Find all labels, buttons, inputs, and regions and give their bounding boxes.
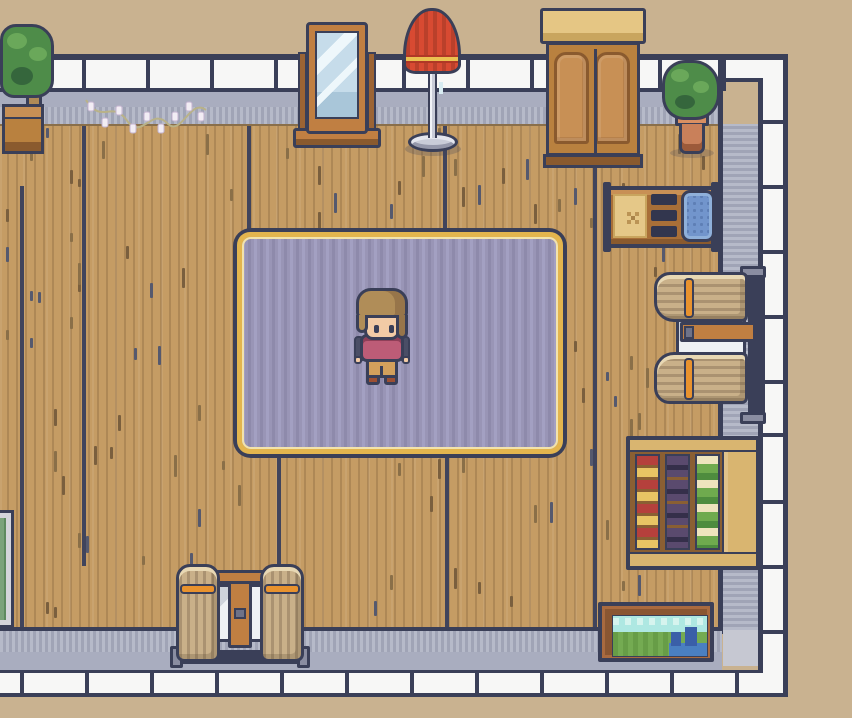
- slat: [651, 194, 677, 205]
- painting-building: [685, 627, 697, 646]
- slat: [651, 226, 677, 237]
- tick: [605, 670, 609, 697]
- mirror-frame: [306, 22, 368, 134]
- tick: [722, 60, 726, 91]
- tick: [146, 60, 150, 91]
- painting-clouds: [613, 618, 707, 625]
- lamp-pole: [428, 68, 437, 138]
- string-lights-graphic: [84, 92, 208, 144]
- tick: [540, 670, 544, 697]
- green-furniture-frame: [0, 510, 14, 628]
- table-blue-cushion: [681, 190, 715, 242]
- character-hair-lock-left: [356, 315, 368, 333]
- tick: [763, 433, 783, 437]
- mat-stitches: [627, 212, 631, 216]
- bookshelf-top-rail: [630, 440, 756, 452]
- bookshelf-side-panel: [722, 452, 756, 552]
- mirror-glass: [315, 31, 359, 119]
- curtain-bottom: [654, 352, 748, 404]
- tick: [475, 670, 479, 697]
- window-cap-bottom: [740, 412, 766, 424]
- wardrobe-base: [543, 154, 643, 168]
- painting[interactable]: [598, 602, 714, 662]
- wardrobe-door-left: [554, 52, 589, 144]
- character-hair: [356, 288, 408, 318]
- lamp-gold-band: [406, 55, 458, 63]
- tick: [85, 670, 89, 697]
- tick: [274, 60, 278, 91]
- foliage-highlight: [693, 81, 709, 93]
- tick: [530, 60, 534, 91]
- curtain-top: [654, 272, 748, 322]
- green-partial-furniture[interactable]: [0, 510, 14, 628]
- tick: [735, 670, 739, 697]
- character-hair-lock-right: [396, 315, 408, 339]
- work-table[interactable]: [601, 184, 721, 250]
- table-mat: [613, 194, 647, 238]
- character-eye-left: [374, 325, 379, 333]
- book-stack-red-yellow: [635, 454, 660, 550]
- tree-pot-base: [5, 142, 41, 151]
- curtain-left: [176, 564, 220, 662]
- tree-foliage: [0, 24, 54, 98]
- tick: [345, 670, 349, 697]
- painting-scene: [612, 615, 708, 657]
- window-knob: [684, 326, 694, 339]
- character-eye-right: [389, 325, 394, 333]
- lamp-sparkle: [439, 82, 443, 94]
- table-slats: [651, 192, 677, 240]
- painting-frame: [598, 602, 714, 662]
- curtain-tie: [684, 358, 694, 400]
- tick: [20, 670, 24, 697]
- room-scene: [0, 0, 852, 718]
- tree-pot-rim: [5, 107, 41, 119]
- plant-pot: [679, 124, 705, 154]
- wardrobe[interactable]: [538, 8, 648, 168]
- wardrobe-door-right: [595, 52, 630, 144]
- window-right[interactable]: [652, 266, 768, 426]
- tick: [763, 565, 783, 569]
- tick: [763, 500, 783, 504]
- wardrobe-door-divider: [594, 49, 597, 153]
- potted-plant[interactable]: [662, 60, 720, 158]
- foliage-shadow: [11, 67, 33, 85]
- plant-foliage: [662, 60, 720, 120]
- table-end-left: [603, 182, 611, 252]
- book-stack-purple: [665, 454, 690, 550]
- window-knob: [234, 608, 246, 619]
- standing-mirror[interactable]: [293, 22, 381, 154]
- lamp-shade: [403, 8, 461, 74]
- bookshelf-frame: [626, 436, 760, 570]
- window-frame-bar-top: [216, 570, 264, 584]
- tick: [210, 60, 214, 91]
- foliage-highlight: [7, 33, 27, 49]
- painting-building: [671, 632, 681, 646]
- wardrobe-body: [546, 42, 640, 156]
- curtain-tie: [684, 278, 694, 318]
- window-backing: [748, 270, 765, 420]
- tick: [82, 60, 86, 91]
- foliage-highlight: [671, 69, 689, 82]
- window-bottom[interactable]: [170, 556, 310, 676]
- tree-pot: [2, 104, 44, 154]
- tick: [763, 120, 783, 124]
- foliage-shadow: [675, 95, 695, 109]
- curtain-tie: [180, 584, 216, 594]
- tick: [670, 670, 674, 697]
- bookshelf[interactable]: [626, 436, 760, 570]
- tick: [410, 670, 414, 697]
- floor-lamp[interactable]: [403, 8, 463, 156]
- potted-tree[interactable]: [0, 24, 62, 154]
- string-lights[interactable]: [84, 92, 208, 144]
- tick: [466, 60, 470, 91]
- character-pants-split: [380, 366, 383, 378]
- green-furniture-top: [0, 518, 6, 620]
- tick: [763, 250, 783, 254]
- bookshelf-bottom-rail: [630, 552, 756, 566]
- curtain-right: [260, 564, 304, 662]
- tick: [150, 670, 154, 697]
- wardrobe-top: [540, 8, 646, 44]
- tick: [763, 185, 783, 189]
- player-character[interactable]: [354, 288, 410, 388]
- slat: [651, 210, 677, 221]
- curtain-tie: [264, 584, 300, 594]
- foliage-highlight: [29, 47, 47, 61]
- book-stack-green: [695, 454, 720, 550]
- tick: [763, 630, 783, 634]
